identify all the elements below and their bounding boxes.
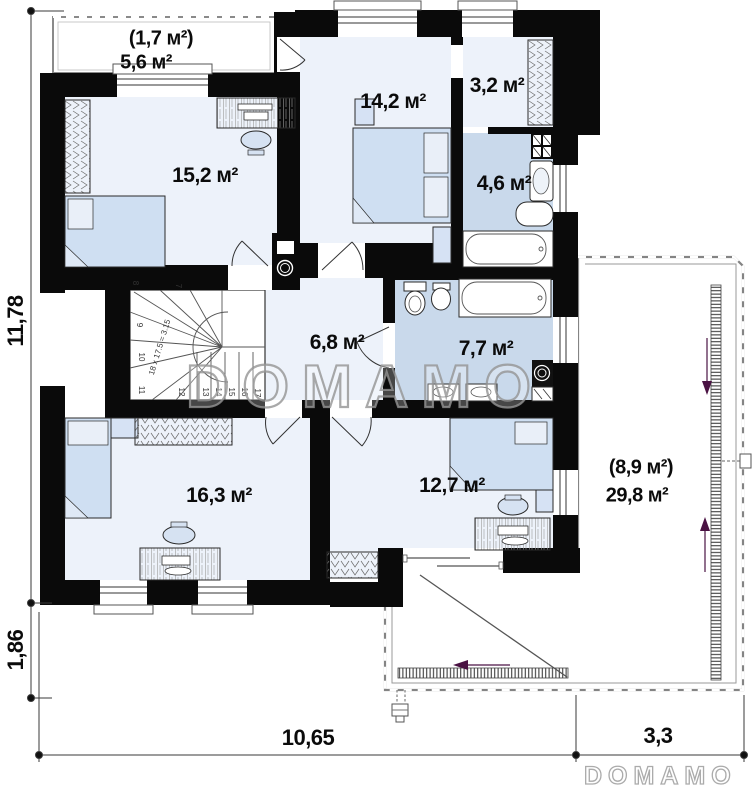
dresser xyxy=(433,227,451,263)
terrace-railing-bottom xyxy=(398,668,568,678)
brand-logo: DOMAMO xyxy=(584,762,737,791)
cabinet xyxy=(516,202,553,226)
bathtub xyxy=(463,231,553,267)
watermark: DOMAMO xyxy=(186,352,544,421)
room-label-wardrobe: 3,2 м² xyxy=(470,74,525,98)
bidet xyxy=(432,283,451,310)
dimension-height-lower: 1,86 xyxy=(3,630,29,671)
pillow xyxy=(68,199,93,229)
step-number: 10 xyxy=(137,353,146,362)
pillow xyxy=(515,422,547,444)
step-number: 8 xyxy=(131,281,140,286)
washing-machine xyxy=(531,133,553,159)
wardrobe xyxy=(528,40,553,125)
step-number: 9 xyxy=(135,323,144,328)
room-label-bathroom-small: 4,6 м² xyxy=(477,172,532,196)
floor-plan-page: 18 x 17.5 = 3.15 7 8 9 10 11 12 13 14 15… xyxy=(0,0,752,800)
wardrobe xyxy=(65,100,90,193)
wardrobe xyxy=(327,552,378,578)
toilet xyxy=(404,282,426,315)
side-table xyxy=(536,490,553,512)
chair xyxy=(241,131,271,149)
step-number: 12 xyxy=(177,388,186,397)
terrace-railing-right xyxy=(711,285,721,680)
wardrobe-room-furniture xyxy=(528,40,553,125)
room-label-bedroom-top-middle: 14,2 м² xyxy=(360,90,426,114)
boiler xyxy=(272,233,300,290)
dimension-height-total: 11,78 xyxy=(3,295,29,346)
balcony-area-label: 5,6 м² xyxy=(120,52,172,75)
downspout xyxy=(392,690,408,722)
pillow xyxy=(424,133,448,173)
chair xyxy=(163,526,195,544)
terrace-area-secondary-label: (8,9 м²) xyxy=(609,457,673,480)
room-label-bedroom-top-left: 15,2 м² xyxy=(172,164,238,188)
room-label-bedroom-bottom-left: 16,3 м² xyxy=(186,484,252,508)
balcony-area-secondary-label: (1,7 м²) xyxy=(129,28,193,51)
terrace-area-label: 29,8 м² xyxy=(606,485,668,508)
pillow xyxy=(424,177,448,217)
bathtub xyxy=(459,279,551,317)
wardrobe xyxy=(135,418,232,445)
step-number: 7 xyxy=(174,284,183,289)
pillow xyxy=(68,421,108,445)
dimension-width-terrace: 3,3 xyxy=(643,723,672,749)
nightstand xyxy=(111,418,138,438)
step-number: 11 xyxy=(137,386,146,395)
dimension-width-main: 10,65 xyxy=(282,725,335,751)
room-label-bedroom-bottom-middle: 12,7 м² xyxy=(419,474,485,498)
